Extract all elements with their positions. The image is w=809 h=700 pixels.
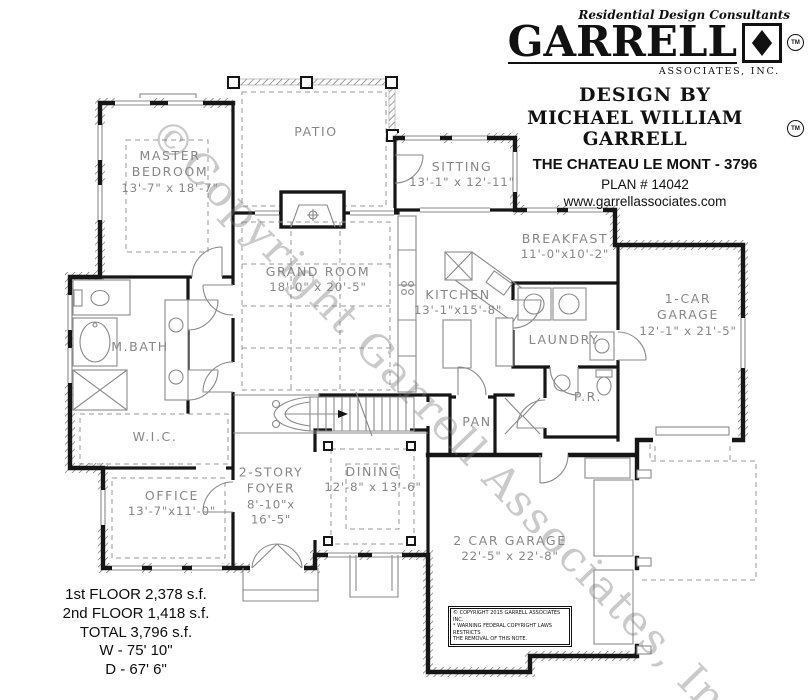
second-floor-area: 2nd FLOOR 1,418 s.f. [36,605,236,624]
area-stats: 1st FLOOR 2,378 s.f. 2nd FLOOR 1,418 s.f… [36,586,236,680]
brand-subtitle: ASSOCIATES, INC. [486,66,804,77]
patio-structure [140,77,398,206]
total-area: TOTAL 3,796 s.f. [36,624,236,643]
plan-depth: D - 67' 6" [36,661,236,680]
floor-plan-sheet: ©Copyright Garrell Associates, Inc. MAST… [0,0,809,700]
copyright-note-text: © COPYRIGHT 2015 GARRELL ASSOCIATES INC.… [450,608,570,645]
hall-closet-doors [505,398,540,434]
brand-wordmark: GARRELL [508,22,737,64]
first-floor-area: 1st FLOOR 2,378 s.f. [36,586,236,605]
powder-room-fixtures [554,370,612,395]
logo: GARRELL TM [486,22,804,64]
trademark-icon: TM [787,120,804,137]
laundry-fixtures [518,288,614,360]
porches [243,555,398,601]
design-by-label: DESIGN BY [486,84,804,106]
bath-fixtures [73,280,188,410]
garage-doors [585,427,756,654]
website-url: www.garrellassociates.com [486,194,804,209]
copyright-note-box: © COPYRIGHT 2015 GARRELL ASSOCIATES INC.… [448,606,572,647]
trademark-icon: TM [787,34,804,51]
plan-name: THE CHATEAU LE MONT - 3796 [486,156,804,173]
ceiling-dashes [80,140,415,558]
plan-number: PLAN # 14042 [486,177,804,192]
title-block: Residential Design Consultants GARRELL T… [486,8,804,209]
plan-width: W - 75' 10" [36,642,236,661]
diamond-logo-icon [742,23,782,63]
designer-name: MICHAEL WILLIAM GARRELL TM [486,108,804,150]
